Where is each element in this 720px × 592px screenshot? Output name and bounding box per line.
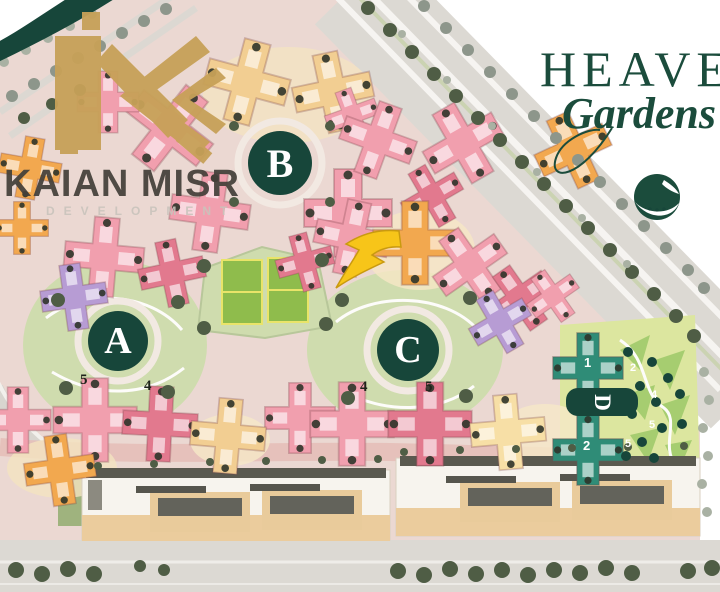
lot-number: 4 (144, 378, 152, 395)
building-number: 2 (583, 438, 590, 453)
garden-number: 5 (625, 438, 631, 450)
zone-a-marker: A (88, 311, 148, 371)
garden-number: 5 (649, 419, 655, 431)
lot-number: 4 (360, 379, 368, 396)
master-plan-image: A B C D 5 4 4 5 1 2 2 4 5 5 KAIAN MISR D… (0, 0, 720, 592)
garden-number: 2 (630, 362, 636, 374)
lot-number: 5 (425, 379, 433, 396)
zone-d-marker: D (566, 388, 638, 416)
lot-number: 5 (80, 372, 88, 389)
garden-number: 4 (651, 389, 657, 401)
zone-c-marker: C (377, 319, 439, 381)
project-subtitle: Gardens (562, 88, 716, 139)
kaian-misr-wordmark: KAIAN MISR (4, 163, 240, 206)
kaian-misr-subtext: DEVELOPMENT (46, 204, 236, 218)
zone-b-marker: B (248, 131, 312, 195)
labels-overlay: A B C D 5 4 4 5 1 2 2 4 5 5 KAIAN MISR D… (0, 0, 720, 592)
building-number: 1 (584, 355, 591, 370)
